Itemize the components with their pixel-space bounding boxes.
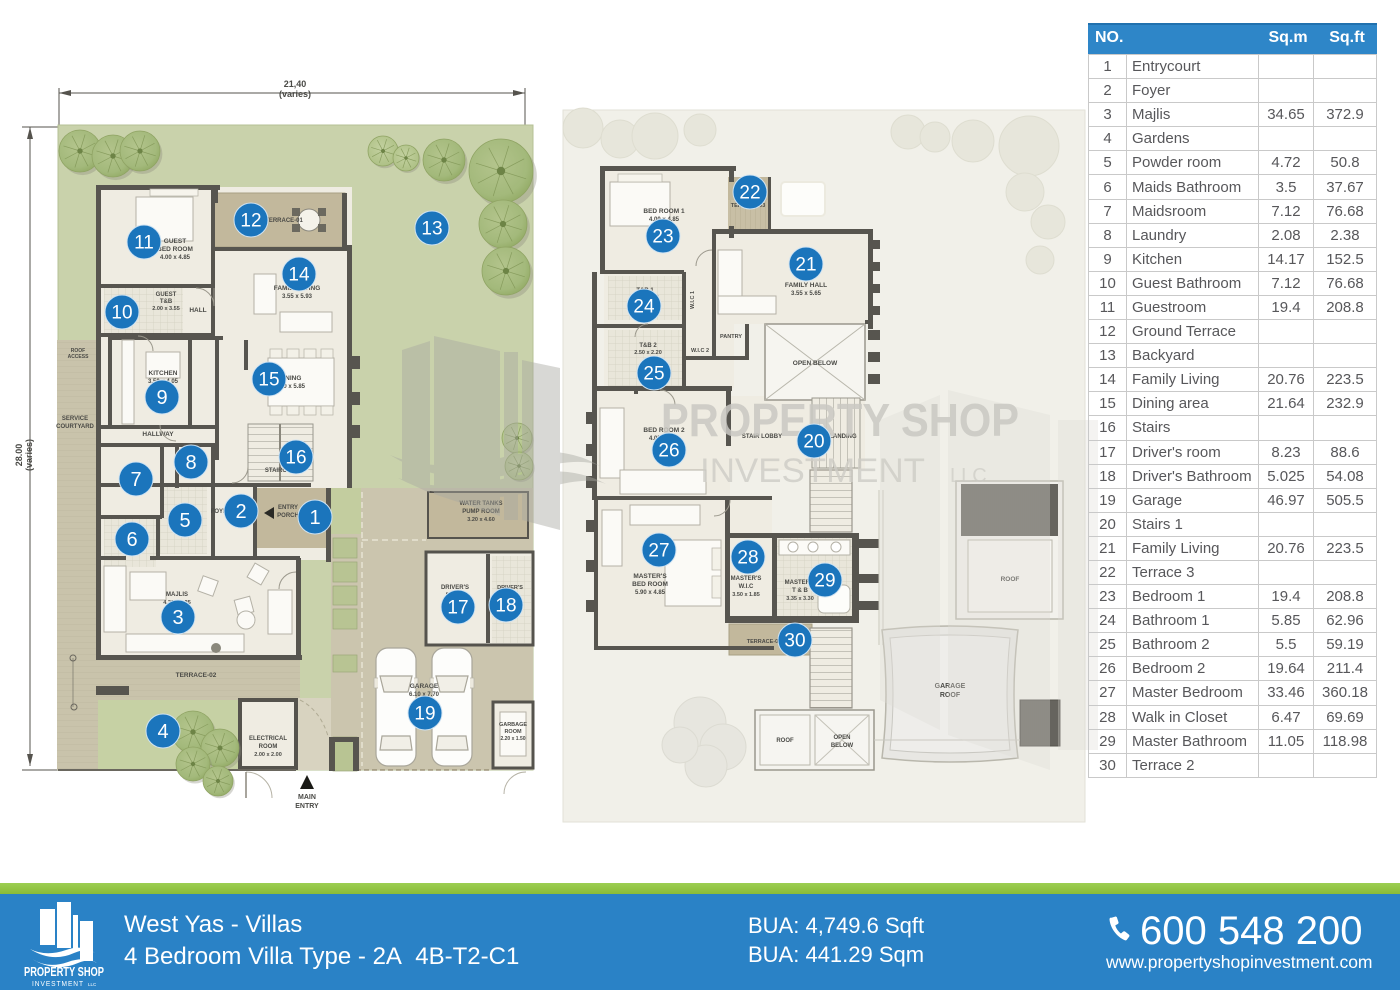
svg-text:1: 1 bbox=[309, 507, 320, 529]
svg-text:19: 19 bbox=[414, 704, 435, 725]
svg-text:28.00: 28.00 bbox=[14, 444, 24, 467]
svg-text:16: 16 bbox=[285, 448, 306, 469]
svg-text:21,40: 21,40 bbox=[284, 79, 307, 89]
svg-text:2: 2 bbox=[235, 501, 246, 523]
svg-text:(varies): (varies) bbox=[279, 89, 311, 99]
svg-text:5: 5 bbox=[179, 510, 190, 532]
svg-text:15: 15 bbox=[258, 370, 279, 391]
svg-text:2.20 x 1.50: 2.20 x 1.50 bbox=[500, 736, 525, 742]
svg-text:27: 27 bbox=[648, 541, 669, 562]
svg-text:GUEST: GUEST bbox=[164, 238, 186, 245]
svg-text:30: 30 bbox=[784, 631, 805, 652]
svg-text:7: 7 bbox=[130, 469, 141, 491]
svg-text:GARBAGE: GARBAGE bbox=[499, 722, 527, 728]
svg-text:PANTRY: PANTRY bbox=[720, 334, 742, 340]
svg-text:3.50 x 1.85: 3.50 x 1.85 bbox=[732, 592, 760, 598]
svg-text:4: 4 bbox=[157, 721, 168, 743]
svg-text:25: 25 bbox=[643, 364, 664, 385]
svg-text:3.55 x 5.65: 3.55 x 5.65 bbox=[791, 291, 822, 297]
svg-text:14: 14 bbox=[288, 265, 310, 286]
svg-text:17: 17 bbox=[447, 598, 468, 619]
svg-text:GARAGE: GARAGE bbox=[410, 683, 439, 690]
svg-text:5.90 x 4.85: 5.90 x 4.85 bbox=[635, 590, 666, 596]
svg-text:HALL: HALL bbox=[189, 307, 206, 314]
svg-text:KITCHEN: KITCHEN bbox=[149, 370, 178, 377]
svg-text:28: 28 bbox=[737, 548, 758, 569]
svg-text:BELOW: BELOW bbox=[831, 743, 854, 749]
svg-text:MAIN: MAIN bbox=[298, 794, 316, 801]
svg-text:PORCH: PORCH bbox=[277, 513, 299, 519]
svg-text:FAMILY HALL: FAMILY HALL bbox=[785, 282, 827, 289]
svg-text:MASTER'S: MASTER'S bbox=[633, 573, 667, 580]
svg-text:W.I.C 1: W.I.C 1 bbox=[690, 291, 696, 309]
svg-text:3.55 x 5.93: 3.55 x 5.93 bbox=[282, 294, 313, 300]
svg-text:13: 13 bbox=[421, 219, 442, 240]
svg-text:LLC: LLC bbox=[950, 465, 987, 487]
svg-text:OPEN: OPEN bbox=[833, 735, 850, 741]
svg-text:T&B: T&B bbox=[160, 299, 173, 305]
svg-text:ENTRY: ENTRY bbox=[278, 505, 298, 511]
svg-text:ROOM: ROOM bbox=[504, 729, 522, 735]
svg-text:29: 29 bbox=[814, 571, 835, 592]
svg-text:GUEST: GUEST bbox=[156, 292, 177, 298]
svg-text:MASTER'S: MASTER'S bbox=[731, 576, 762, 582]
svg-text:3.20 x 4.60: 3.20 x 4.60 bbox=[467, 517, 495, 523]
svg-text:SERVICE: SERVICE bbox=[62, 416, 88, 422]
svg-text:OPEN BELOW: OPEN BELOW bbox=[793, 360, 838, 367]
svg-text:W.I.C: W.I.C bbox=[739, 584, 754, 590]
svg-text:MAJLIS: MAJLIS bbox=[166, 592, 188, 598]
svg-text:BED ROOM: BED ROOM bbox=[157, 246, 193, 253]
svg-text:TERRACE-02: TERRACE-02 bbox=[176, 672, 217, 679]
svg-text:26: 26 bbox=[658, 441, 679, 462]
svg-text:3: 3 bbox=[172, 607, 183, 629]
svg-text:INVESTMENT: INVESTMENT bbox=[32, 981, 84, 988]
svg-text:TERRACE-02: TERRACE-02 bbox=[747, 639, 782, 645]
svg-text:9: 9 bbox=[156, 387, 167, 409]
svg-text:ENTRY: ENTRY bbox=[295, 803, 319, 810]
svg-text:4.00 x 4.85: 4.00 x 4.85 bbox=[160, 255, 191, 261]
svg-text:(varies): (varies) bbox=[24, 439, 34, 471]
svg-text:2.50 x 2.20: 2.50 x 2.20 bbox=[634, 350, 662, 356]
svg-text:8: 8 bbox=[185, 452, 196, 474]
svg-text:T & B: T & B bbox=[792, 588, 808, 594]
svg-text:3.35 x 3.30: 3.35 x 3.30 bbox=[786, 596, 814, 602]
svg-text:24: 24 bbox=[633, 297, 655, 318]
svg-text:12: 12 bbox=[240, 211, 261, 232]
svg-text:COURTYARD: COURTYARD bbox=[56, 424, 94, 430]
svg-text:ACCESS: ACCESS bbox=[68, 354, 90, 360]
svg-text:W.I.C 2: W.I.C 2 bbox=[691, 348, 709, 354]
svg-text:6: 6 bbox=[126, 529, 137, 551]
svg-text:2.00 x 2.00: 2.00 x 2.00 bbox=[254, 752, 282, 758]
svg-text:2.00 x 3.55: 2.00 x 3.55 bbox=[152, 306, 180, 312]
svg-text:20: 20 bbox=[803, 432, 824, 453]
svg-text:PROPERTY SHOP: PROPERTY SHOP bbox=[661, 394, 1019, 446]
svg-text:ROOM: ROOM bbox=[259, 744, 278, 750]
svg-text:PROPERTY SHOP: PROPERTY SHOP bbox=[24, 965, 104, 979]
svg-text:23: 23 bbox=[652, 227, 673, 248]
svg-text:21: 21 bbox=[795, 255, 816, 276]
svg-text:11: 11 bbox=[134, 233, 154, 254]
svg-text:LLC: LLC bbox=[88, 982, 97, 987]
svg-text:T&B 2: T&B 2 bbox=[639, 343, 657, 349]
svg-text:BED ROOM 1: BED ROOM 1 bbox=[643, 208, 685, 215]
svg-text:22: 22 bbox=[739, 183, 760, 204]
svg-text:ELECTRICAL: ELECTRICAL bbox=[249, 736, 287, 742]
svg-text:TERRACE-01: TERRACE-01 bbox=[265, 218, 303, 224]
svg-text:10: 10 bbox=[111, 303, 132, 324]
svg-text:BED ROOM: BED ROOM bbox=[632, 581, 668, 588]
svg-text:HALLWAY: HALLWAY bbox=[142, 431, 174, 438]
svg-text:18: 18 bbox=[495, 596, 516, 617]
svg-text:ROOF: ROOF bbox=[776, 738, 794, 744]
